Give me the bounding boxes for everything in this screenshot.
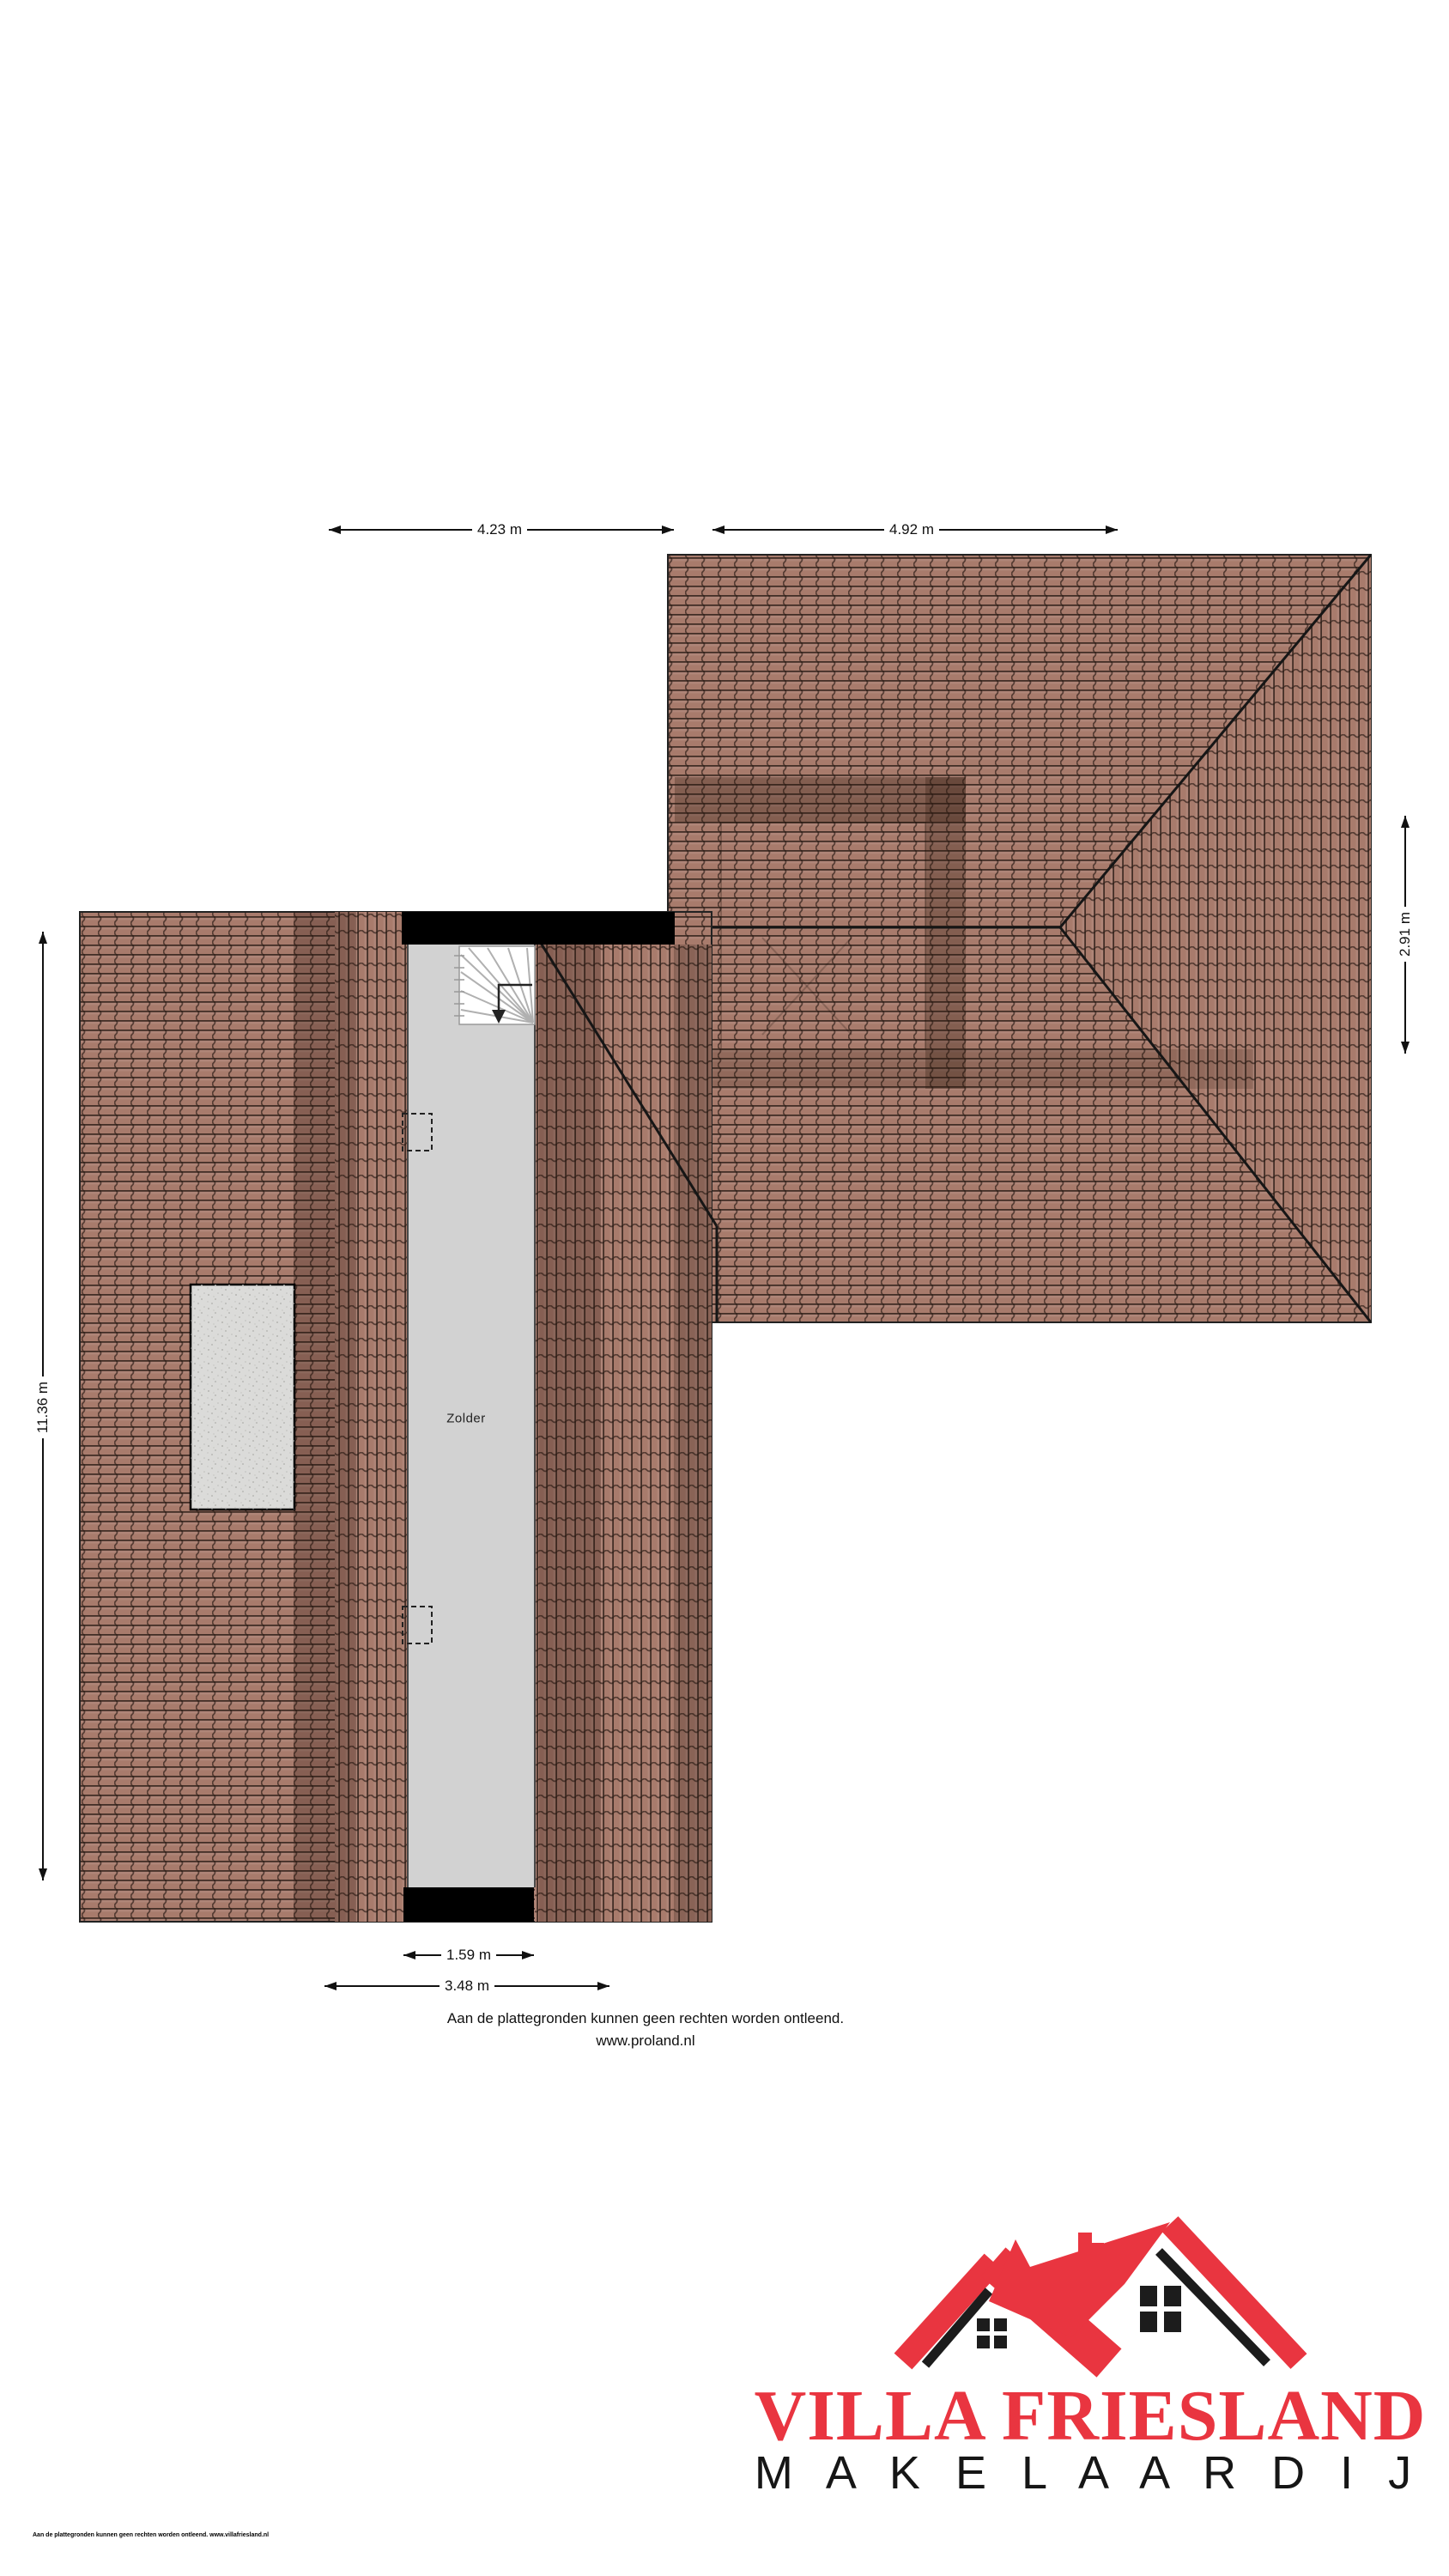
floorplan-drawing	[0, 0, 1449, 2576]
logo-chimney	[1078, 2233, 1092, 2272]
dim-right-side: 2.91 m	[1397, 907, 1414, 962]
logo-wordmark: VILLA FRIESLAND	[755, 2380, 1427, 2452]
roof-block-right	[601, 555, 1371, 1322]
dim-top-right: 4.92 m	[884, 521, 939, 538]
room-label-zolder: Zolder	[446, 1412, 486, 1426]
logo-window-right	[1140, 2286, 1181, 2332]
logo-window-left	[977, 2318, 1007, 2348]
staircase	[454, 946, 535, 1024]
floorplan-page: 4.23 m 4.92 m 2.91 m 11.36 m 1.59 m 3.48…	[0, 0, 1449, 2576]
roof-block-left	[80, 912, 717, 1922]
logo-graphic	[903, 2222, 1299, 2365]
dim-top-left: 4.23 m	[472, 521, 527, 538]
disclaimer-line1: Aan de plattegronden kunnen geen rechten…	[447, 2008, 844, 2030]
wall-bottom	[403, 1887, 534, 1922]
footer-small-print: Aan de plattegronden kunnen geen rechten…	[33, 2532, 269, 2538]
dim-left-side: 11.36 m	[34, 1376, 52, 1438]
disclaimer-line2: www.proland.nl	[596, 2030, 694, 2052]
logo-tagline: M A K E L A A R D I J	[755, 2450, 1422, 2496]
dim-bottom-outer: 3.48 m	[440, 1978, 494, 1995]
roof-panel	[191, 1285, 294, 1510]
wall-top	[402, 912, 675, 945]
dim-bottom-inner: 1.59 m	[441, 1947, 496, 1964]
